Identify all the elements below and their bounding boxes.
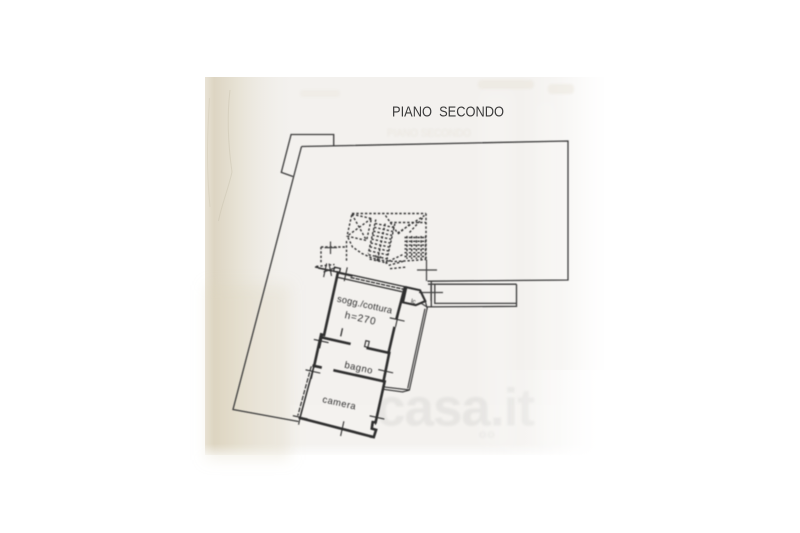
svg-text:PIANO SECONDO: PIANO SECONDO — [392, 104, 504, 121]
svg-text:PIANO SECONDO: PIANO SECONDO — [387, 128, 471, 140]
